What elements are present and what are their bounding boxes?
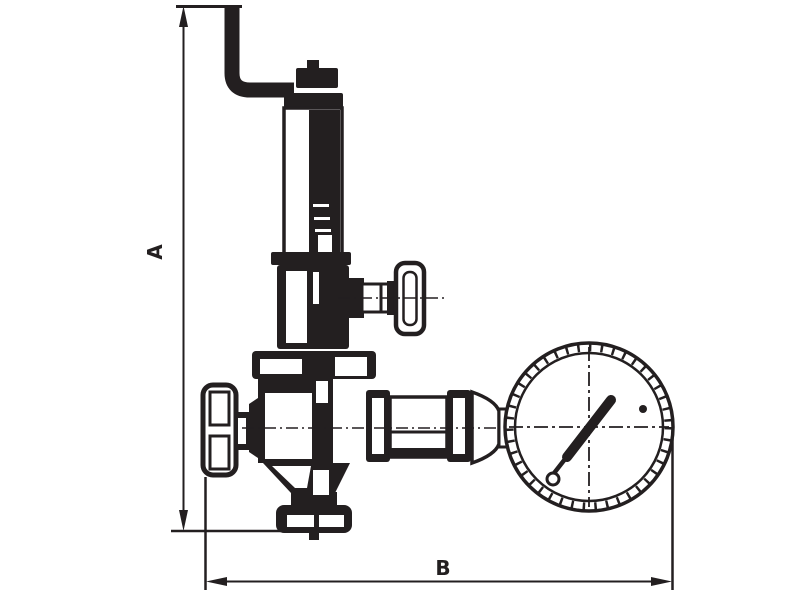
neck-window xyxy=(313,470,329,495)
dim-b-label: B xyxy=(435,556,450,580)
outlet-fittings-icon xyxy=(366,390,513,463)
outlet-nut-2-slot xyxy=(453,398,465,454)
technical-drawing-canvas: A B xyxy=(0,0,800,598)
bonnet-slot xyxy=(286,271,307,343)
dim-a-arrow-up-icon xyxy=(179,6,188,27)
elbow-pipe-icon xyxy=(232,7,294,90)
pressure-gauge-icon xyxy=(505,343,673,511)
spring-housing-icon xyxy=(271,108,351,265)
cap-flange xyxy=(284,93,343,108)
needle-counterweight xyxy=(547,473,559,485)
body-slot xyxy=(316,381,328,403)
dim-b-arrow-right-icon xyxy=(651,577,672,586)
bonnet-icon xyxy=(277,265,349,349)
cap-body xyxy=(296,68,338,88)
outlet-nut-1-slot xyxy=(372,398,384,454)
body-top-window-right xyxy=(335,357,367,376)
left-handwheel-rim xyxy=(203,385,236,475)
dim-b-arrow-left-icon xyxy=(206,577,227,586)
valve-drawing: A B xyxy=(0,0,800,598)
flange-window-left xyxy=(287,515,314,527)
thread-mark xyxy=(314,217,330,220)
flange-tail xyxy=(309,533,319,540)
side-handwheel-icon xyxy=(338,263,446,334)
dim-a-arrow-down-icon xyxy=(179,510,188,531)
housing-slot xyxy=(318,235,332,253)
left-stem-slot xyxy=(238,418,246,444)
body-window xyxy=(265,393,312,459)
dim-a-label: A xyxy=(143,244,167,260)
valve-body-icon xyxy=(252,351,376,540)
outlet-pipe-band xyxy=(390,448,447,457)
housing-base-flange xyxy=(271,252,351,265)
thread-mark xyxy=(313,204,329,207)
inlet-handwheel-icon xyxy=(203,385,261,475)
gauge-stop-pin xyxy=(639,405,647,413)
bonnet-slot-small xyxy=(313,272,319,304)
flange-window-right xyxy=(319,515,344,527)
body-top-window-left xyxy=(260,359,302,374)
thread-mark xyxy=(315,229,331,232)
